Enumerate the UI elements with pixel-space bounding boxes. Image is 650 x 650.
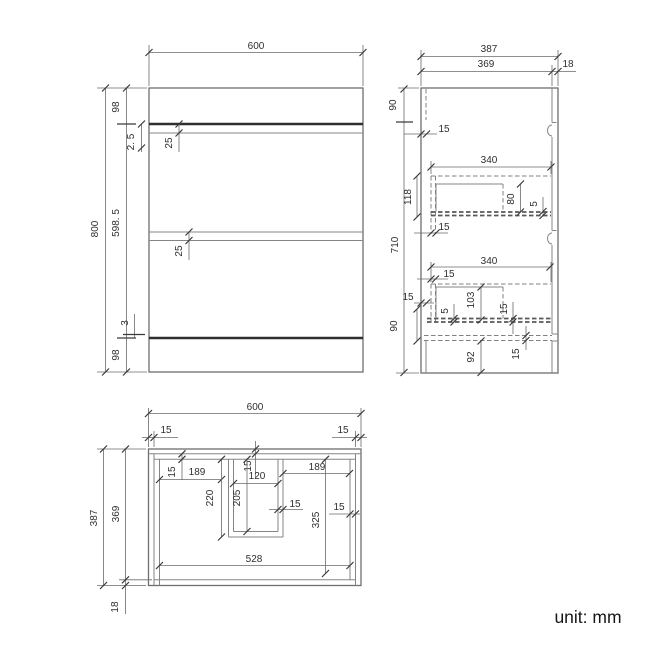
dim-plan-cutout: 15 120 205 15: [230, 441, 303, 535]
dim-front-rail-top: 25: [164, 121, 183, 153]
side-drawer1-depth-label: 340: [481, 155, 498, 166]
vanity-cabinet-drawing: 600 800 98 2. 5 598. 5 3 98 25: [0, 0, 650, 650]
side-drawer2-front-label: 15: [443, 269, 455, 280]
dim-side-drawer2: 340 15 15 103 5 15: [402, 256, 553, 334]
dim-front-rail-mid: 25: [174, 229, 193, 261]
side-body-depth-label: 369: [478, 59, 495, 70]
hanging-bracket-notch: [548, 231, 557, 245]
side-plinth-zone-label: 90: [389, 320, 400, 332]
plan-left-inset-label: 15: [167, 466, 178, 478]
unit-note: unit: mm: [554, 607, 621, 627]
side-back-panel: [548, 89, 559, 373]
plan-width-label: 600: [247, 402, 264, 413]
plan-right-depth-label: 325: [311, 511, 322, 528]
plan-left-bay-label: 189: [189, 467, 206, 478]
side-drawer2-gap-label: 5: [440, 308, 451, 314]
side-drawer1-side-label: 15: [438, 222, 450, 233]
plan-right-bay-label: 189: [309, 462, 326, 473]
front-top-panel-label: 98: [111, 101, 122, 113]
plan-inner-depth-label: 369: [111, 505, 122, 522]
dim-side-body-depth: 369 18: [418, 59, 577, 86]
plan-wall-left-label: 15: [160, 425, 172, 436]
dim-plan-depth: 387 369 18: [89, 446, 152, 615]
plan-cutout-wall-label: 15: [289, 499, 301, 510]
side-drawer2-box-label: 103: [466, 291, 477, 308]
dim-side-front-thickness: 15: [404, 124, 450, 138]
dim-plan-width: 600: [145, 402, 365, 447]
side-drawer2-bottom-label: 15: [499, 303, 510, 315]
side-bottom-panel-label: 15: [511, 348, 522, 360]
side-drawer1-gap-label: 5: [529, 201, 540, 207]
dim-plan-inner-width: 528: [156, 554, 354, 569]
side-lower-drawer: [427, 284, 551, 322]
front-bottom-gap-label: 3: [120, 320, 131, 326]
dim-plan-right-bay: 189 325 15: [280, 456, 361, 577]
front-body-label: 598. 5: [111, 209, 122, 237]
dim-plan-wall-right: 15: [332, 425, 367, 447]
side-depth-label: 387: [481, 44, 498, 55]
front-plinth-label: 98: [111, 349, 122, 361]
plan-wall-right-label: 15: [337, 425, 349, 436]
front-top-gap-label: 2. 5: [126, 133, 137, 150]
side-drawer2-left-label: 15: [402, 292, 414, 303]
plan-cutout-depth-label: 205: [232, 489, 243, 506]
front-rail-top-label: 25: [164, 137, 175, 149]
front-width-label: 600: [248, 41, 265, 52]
dim-plan-left-bay: 15 189 220: [156, 450, 225, 540]
front-rail-mid-label: 25: [174, 245, 185, 257]
front-height-label: 800: [90, 220, 101, 237]
technical-drawing-page: 600 800 98 2. 5 598. 5 3 98 25: [0, 0, 650, 650]
plan-back-gap-label: 18: [110, 601, 121, 613]
dim-front-width: 600: [146, 41, 367, 86]
plan-divider-depth-label: 220: [205, 489, 216, 506]
dim-front-segments: 98 2. 5 598. 5 3 98: [111, 85, 145, 376]
plan-cabinet-outline: [149, 449, 362, 586]
plan-inner-width-label: 528: [246, 554, 263, 565]
plan-depth-label: 387: [89, 509, 100, 526]
side-drawer2-depth-label: 340: [481, 256, 498, 267]
plan-cutout-width-label: 120: [249, 471, 266, 482]
side-top-height-label: 90: [388, 99, 399, 111]
hanging-bracket-notch: [548, 123, 557, 137]
side-back-offset-label: 18: [562, 59, 574, 70]
side-bottom-rail: [424, 336, 552, 341]
dim-side-drawer1: 340 118 80 5 15: [403, 155, 555, 237]
side-drawer1-box-label: 80: [506, 193, 517, 205]
dim-plan-wall-left: 15: [142, 425, 178, 447]
side-height-label: 710: [390, 236, 401, 253]
side-front-thickness-label: 15: [438, 124, 450, 135]
plan-section-view: 600 15 15 387 369 18: [89, 402, 367, 614]
plan-right-wall-label: 15: [333, 502, 345, 513]
side-section-view: 387 369 18 90 710 15: [388, 44, 576, 376]
side-drawer1-height-label: 118: [403, 189, 414, 205]
side-bottom-height-label: 92: [466, 351, 477, 363]
front-elevation-view: 600 800 98 2. 5 598. 5 3 98 25: [90, 41, 367, 376]
